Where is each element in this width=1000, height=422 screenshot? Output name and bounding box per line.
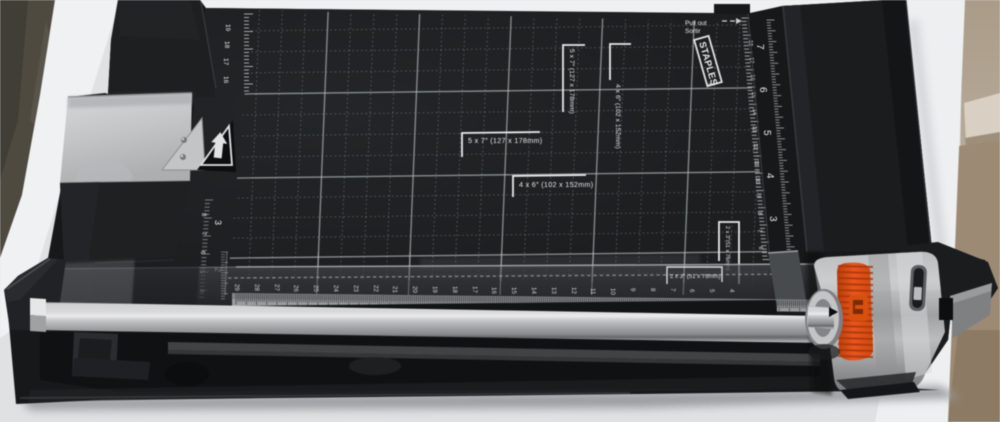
svg-text:2 x 3″ (51 x 76mm): 2 x 3″ (51 x 76mm) (670, 274, 720, 280)
svg-text:11: 11 (589, 288, 596, 295)
svg-text:5: 5 (708, 289, 715, 293)
svg-text:20: 20 (411, 286, 418, 293)
svg-text:28: 28 (253, 284, 260, 291)
svg-text:16: 16 (490, 287, 497, 294)
svg-text:13: 13 (751, 126, 757, 132)
svg-text:17: 17 (222, 58, 229, 66)
svg-text:22: 22 (372, 285, 379, 292)
svg-text:17: 17 (471, 286, 478, 293)
svg-text:23: 23 (352, 285, 359, 292)
svg-text:6: 6 (688, 289, 695, 293)
svg-text:9: 9 (629, 288, 636, 292)
svg-text:24: 24 (332, 285, 339, 292)
svg-text:7: 7 (756, 229, 762, 232)
svg-text:7: 7 (754, 44, 765, 50)
svg-text:15: 15 (510, 287, 517, 294)
svg-text:6: 6 (757, 246, 763, 249)
svg-text:18: 18 (223, 41, 230, 49)
svg-text:17: 17 (748, 57, 754, 63)
svg-text:5 x 7″ (127 x 178mm): 5 x 7″ (127 x 178mm) (568, 49, 575, 114)
svg-text:4 x 6″ (102 x 152mm): 4 x 6″ (102 x 152mm) (519, 180, 593, 189)
svg-text:Sortir: Sortir (685, 28, 701, 35)
svg-text:9: 9 (755, 195, 761, 198)
svg-text:11: 11 (753, 160, 759, 166)
svg-text:13: 13 (550, 287, 557, 294)
svg-text:3: 3 (767, 216, 778, 222)
svg-text:4: 4 (764, 173, 775, 179)
svg-text:10: 10 (754, 178, 760, 184)
svg-text:5: 5 (761, 130, 772, 136)
svg-text:14: 14 (530, 287, 537, 294)
svg-text:19: 19 (224, 24, 231, 32)
svg-text:5 x 7″ (127 x 178mm): 5 x 7″ (127 x 178mm) (468, 136, 542, 145)
svg-text:6: 6 (757, 87, 768, 93)
svg-text:3: 3 (213, 220, 223, 225)
svg-text:4 x 6″ (102 x 152mm): 4 x 6″ (102 x 152mm) (614, 84, 621, 149)
svg-text:19: 19 (431, 286, 438, 293)
svg-text:21: 21 (391, 286, 398, 293)
svg-text:29: 29 (233, 284, 240, 291)
svg-text:25: 25 (312, 285, 319, 292)
svg-text:7: 7 (669, 288, 676, 292)
svg-text:18: 18 (451, 286, 458, 293)
svg-text:4: 4 (728, 289, 735, 293)
svg-text:8: 8 (649, 288, 656, 292)
svg-text:27: 27 (273, 284, 280, 291)
svg-text:8: 8 (756, 212, 762, 215)
svg-text:16: 16 (222, 76, 229, 84)
svg-text:Pull out: Pull out (685, 20, 707, 27)
svg-text:12: 12 (752, 143, 758, 149)
svg-text:12: 12 (570, 287, 577, 294)
svg-text:26: 26 (292, 285, 299, 292)
svg-text:10: 10 (609, 288, 616, 295)
